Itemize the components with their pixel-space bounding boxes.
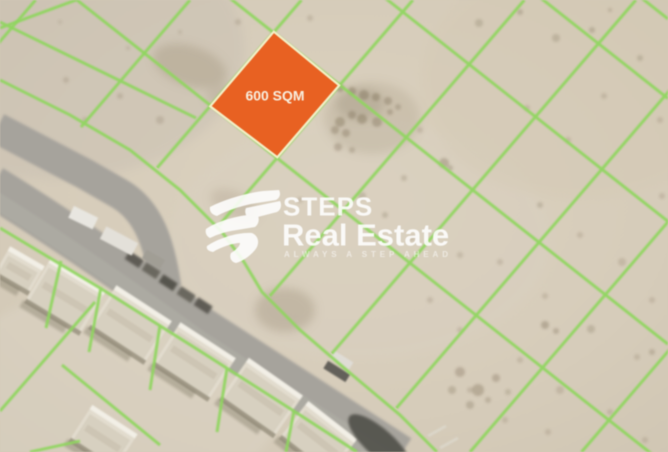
svg-text:Real Estate: Real Estate [282, 218, 449, 253]
svg-text:600 SQM: 600 SQM [246, 88, 305, 104]
svg-text:ALWAYS A STEP AHEAD: ALWAYS A STEP AHEAD [284, 250, 452, 259]
